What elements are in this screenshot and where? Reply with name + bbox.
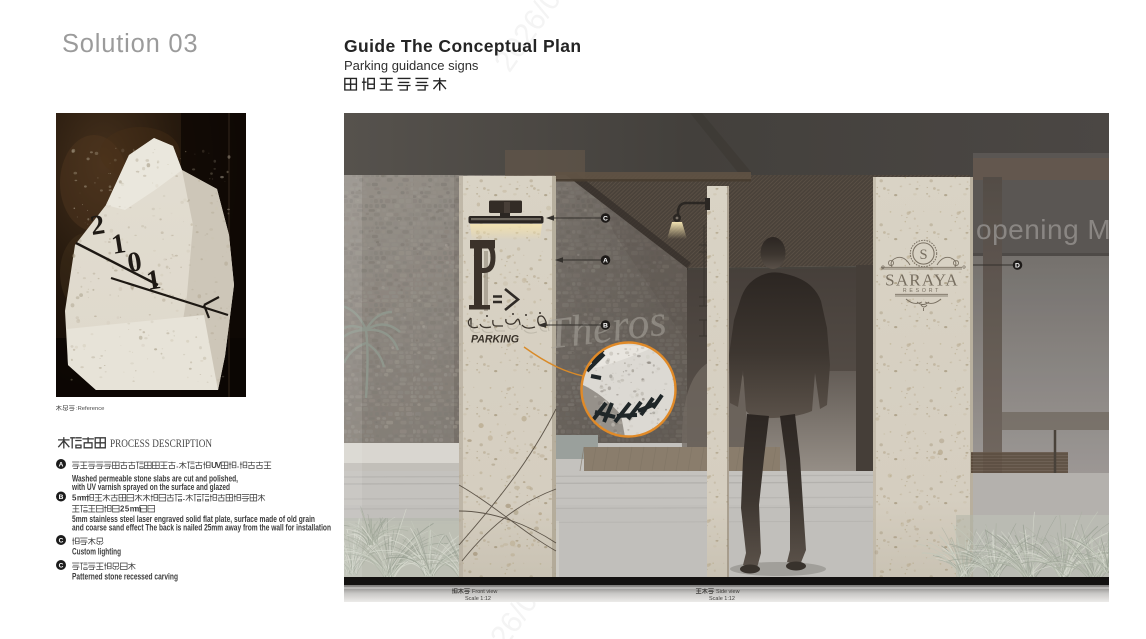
svg-text:RESORT: RESORT (903, 288, 941, 294)
svg-text::Reference: :Reference (76, 406, 104, 412)
svg-text:C: C (603, 216, 608, 223)
svg-text:Scale 1:12: Scale 1:12 (465, 596, 491, 602)
svg-text:D: D (1015, 263, 1020, 270)
svg-text:V: V (216, 461, 222, 470)
svg-text:Patterned stone recessed carvi: Patterned stone recessed carving (72, 572, 178, 583)
svg-text:C: C (59, 562, 64, 569)
svg-text:PROCESS DESCRIPTION: PROCESS DESCRIPTION (110, 436, 212, 450)
svg-text:SARAYA: SARAYA (885, 271, 959, 290)
svg-text:m: m (135, 505, 142, 514)
svg-text:with UV varnish sprayed on the: with UV varnish sprayed on the surface a… (71, 482, 230, 493)
svg-text:A: A (603, 258, 608, 265)
svg-text:Custom lighting: Custom lighting (72, 547, 121, 558)
svg-text:Scale 1:12: Scale 1:12 (709, 596, 735, 602)
svg-text:PARKING: PARKING (471, 334, 519, 346)
svg-text:B: B (603, 323, 608, 330)
svg-text:S: S (919, 247, 927, 263)
svg-text:m: m (82, 494, 89, 503)
svg-text:A: A (59, 461, 64, 468)
svg-text:C: C (59, 537, 64, 544)
svg-text:and coarse sand effect The bac: and coarse sand effect The back is naile… (72, 523, 331, 534)
svg-text:Front view: Front view (472, 589, 497, 595)
svg-text:B: B (59, 494, 64, 501)
svg-text:Side view: Side view (716, 589, 740, 595)
